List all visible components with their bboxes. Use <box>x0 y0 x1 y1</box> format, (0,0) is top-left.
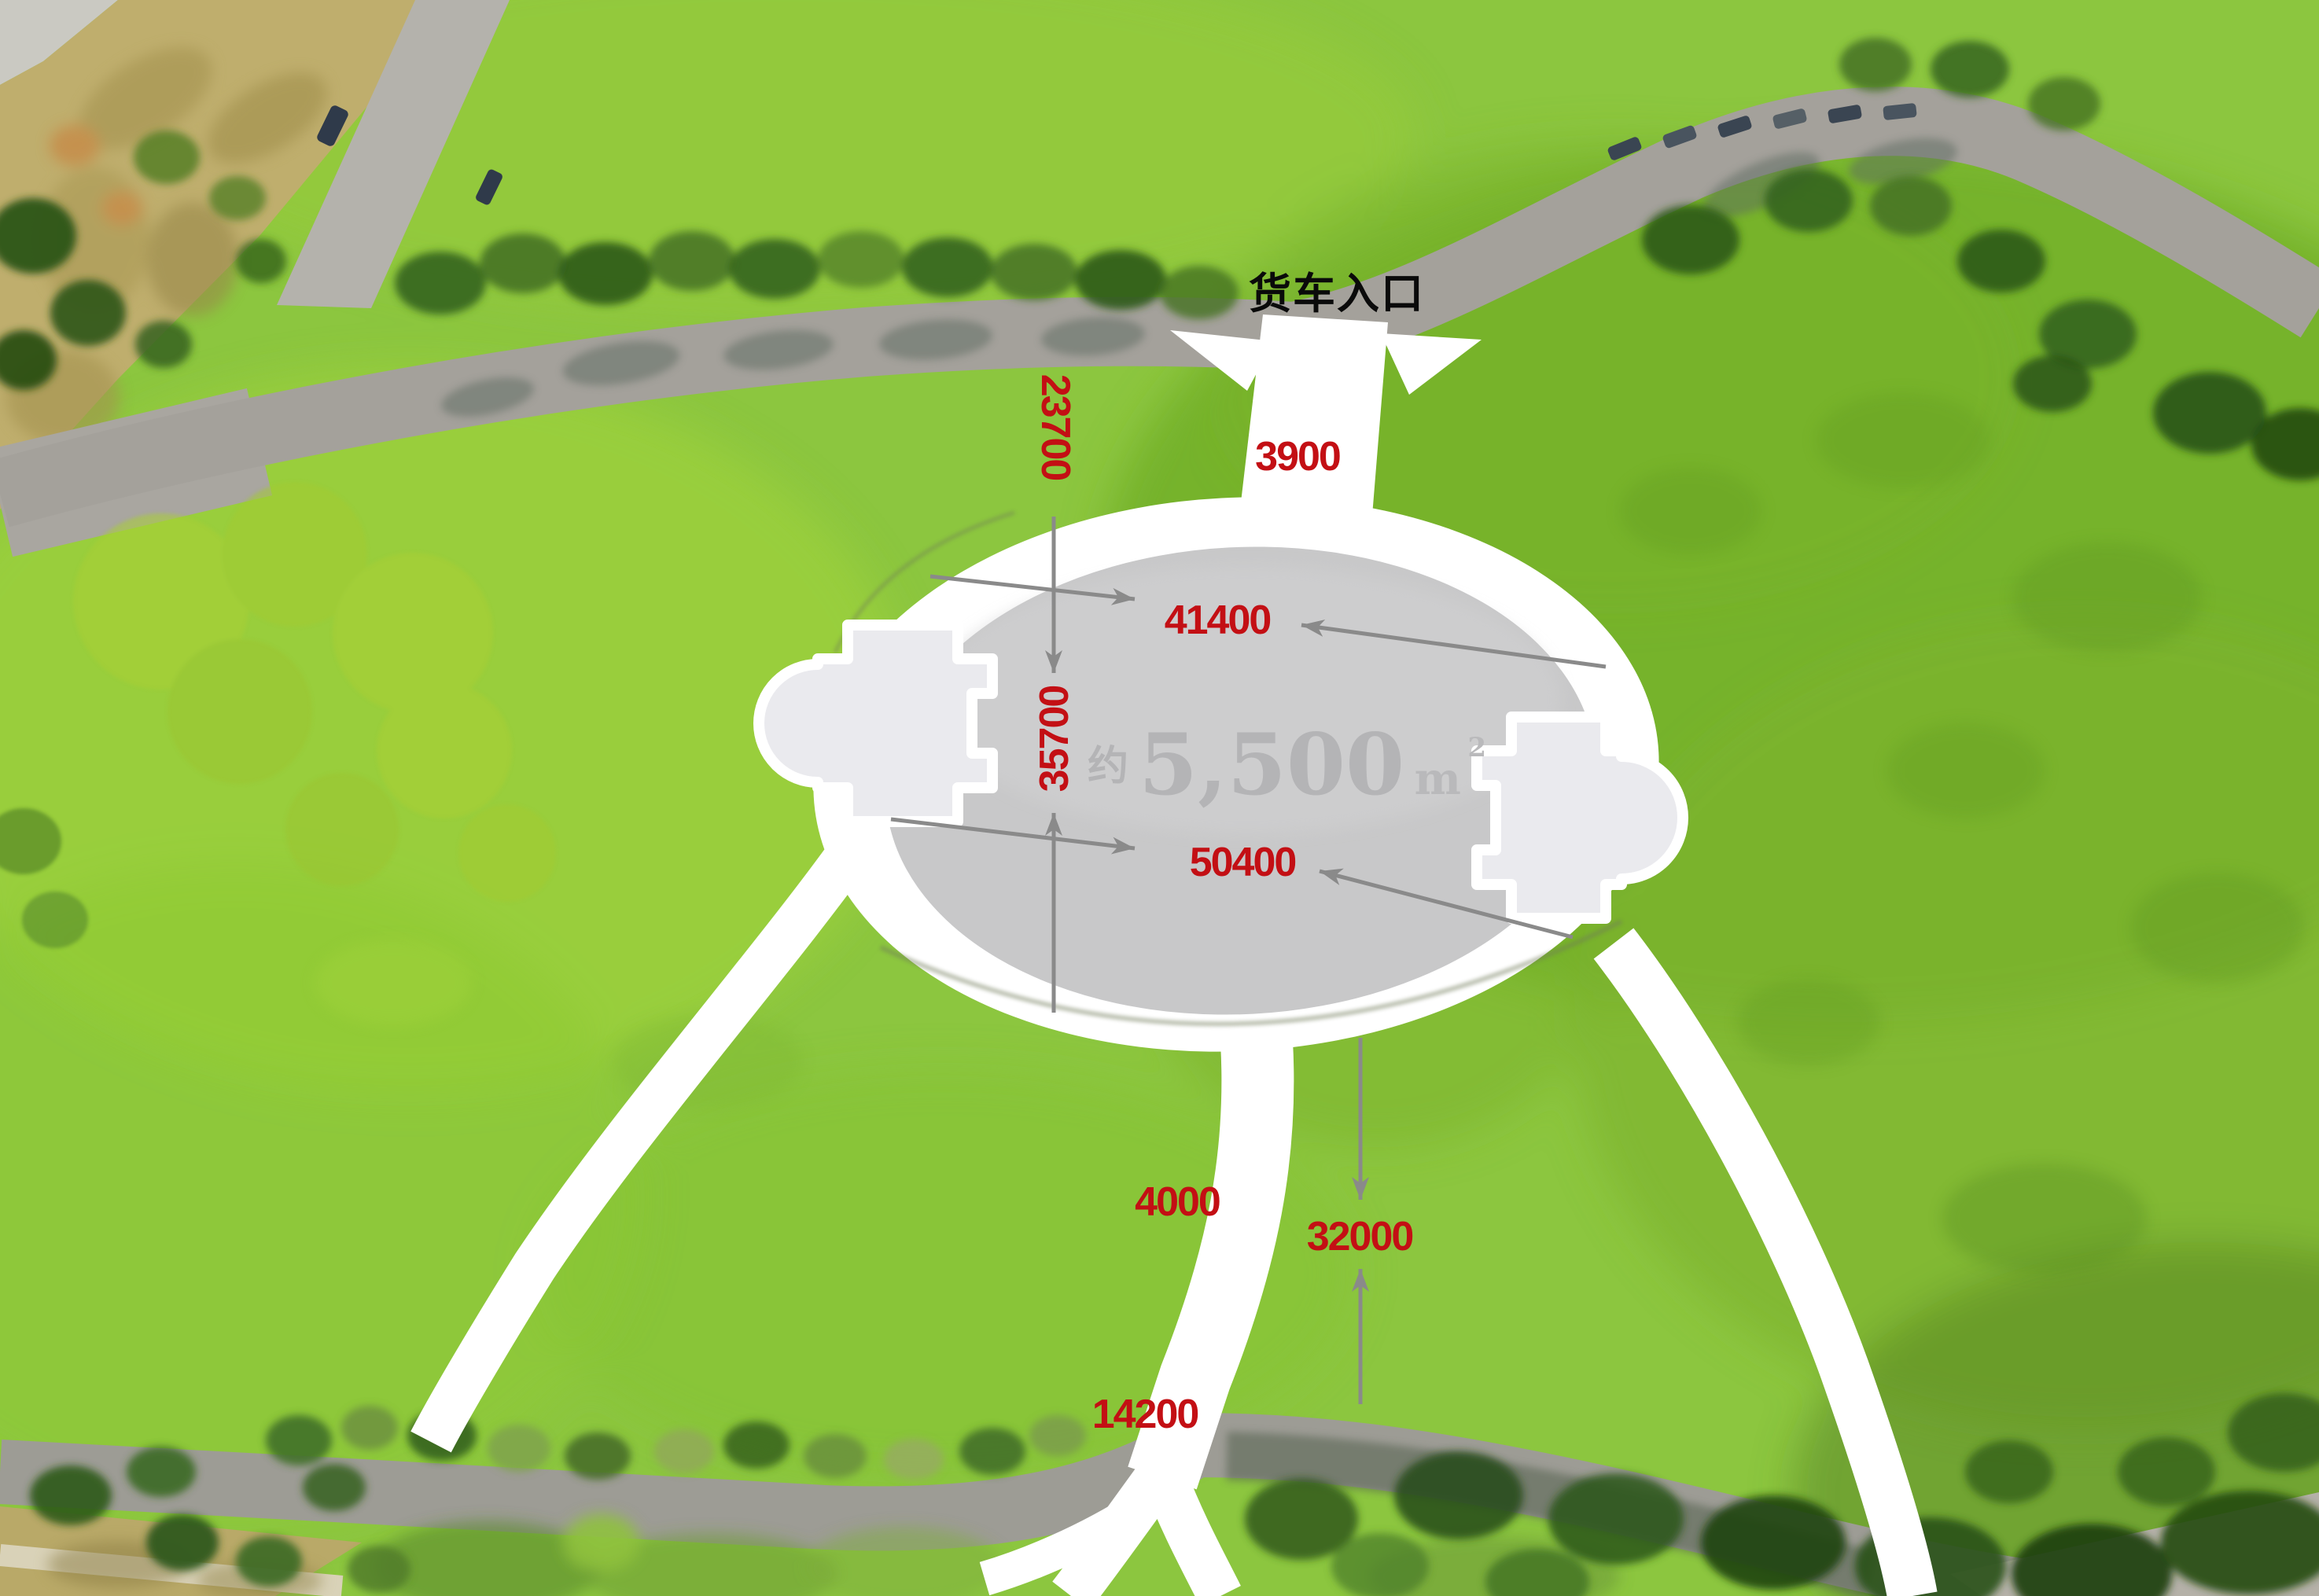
dim-32000-label: 32000 <box>1307 1214 1413 1260</box>
dim-50400-label: 50400 <box>1190 840 1296 885</box>
dim-23700-label: 23700 <box>1033 374 1078 480</box>
dim-41400-label: 41400 <box>1165 598 1271 643</box>
dim-4000-label: 4000 <box>1135 1179 1220 1225</box>
site-plan-canvas: 货车入口 3900 23700 41400 35700 50400 4000 3… <box>0 0 2319 1596</box>
dim-35700-label: 35700 <box>1032 686 1077 792</box>
dim-3900-label: 3900 <box>1255 434 1340 480</box>
aerial-site-plan: 货车入口 3900 23700 41400 35700 50400 4000 3… <box>0 0 2319 1596</box>
dim-14200-label: 14200 <box>1092 1392 1198 1437</box>
truck-entrance-label: 货车入口 <box>1249 270 1425 318</box>
